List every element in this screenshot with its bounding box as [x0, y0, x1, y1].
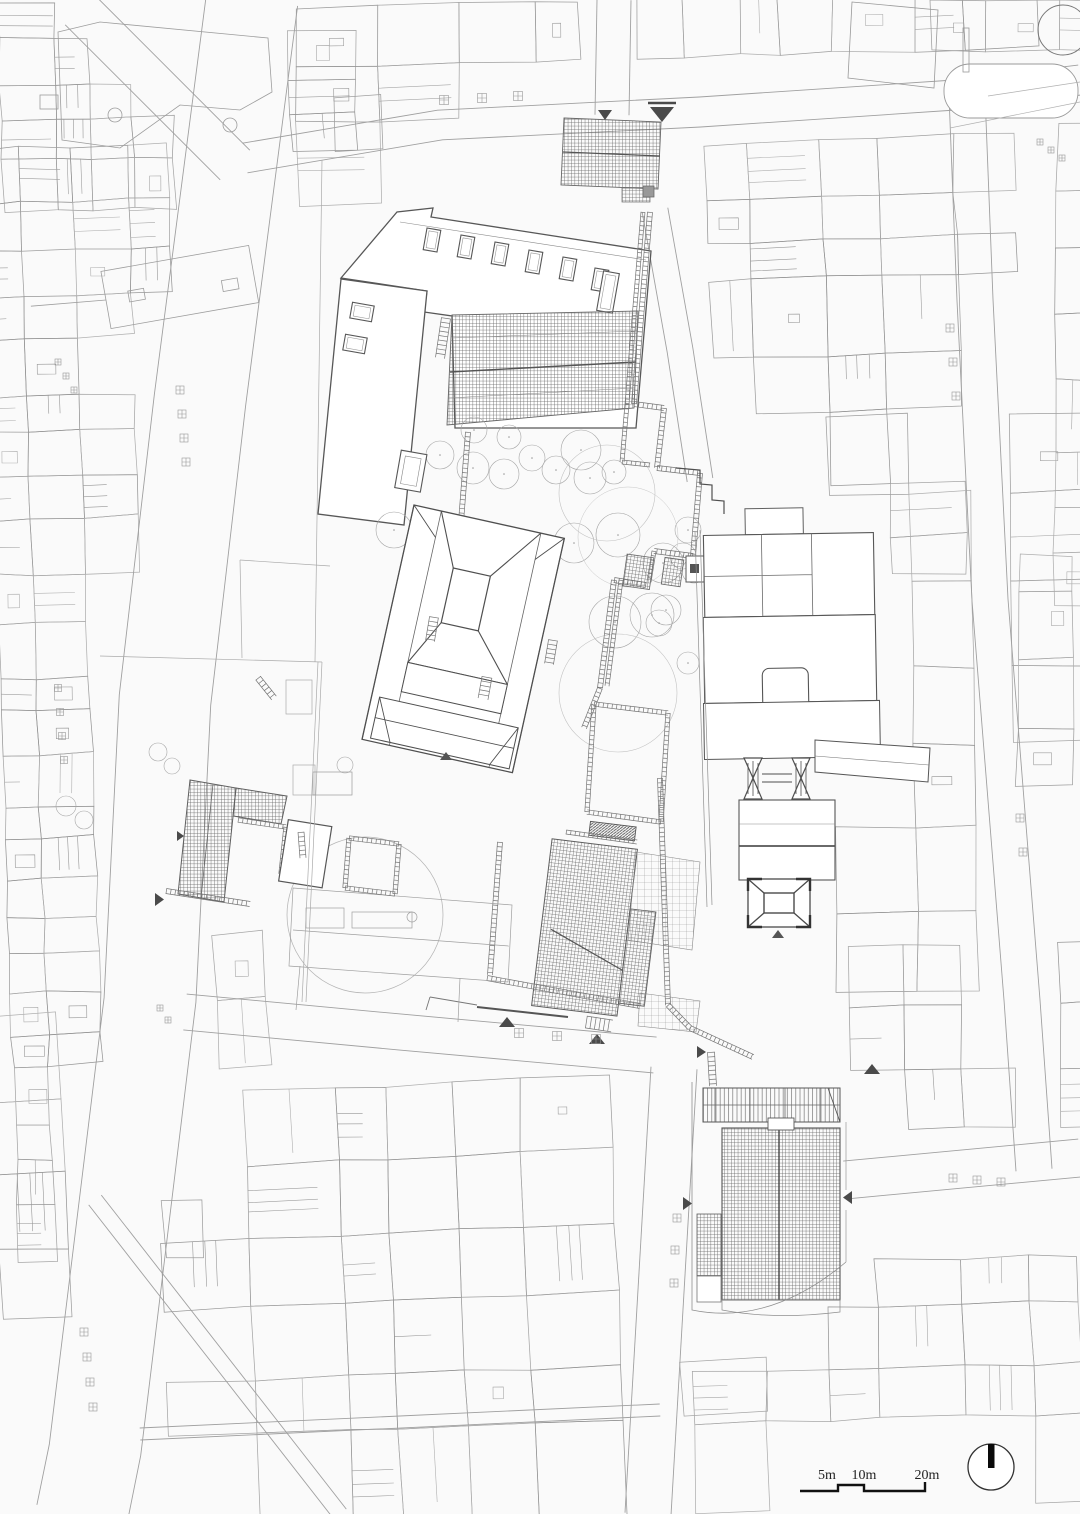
svg-text:10m: 10m: [852, 1468, 877, 1483]
svg-text:5m: 5m: [818, 1468, 836, 1483]
svg-text:20m: 20m: [915, 1468, 940, 1483]
